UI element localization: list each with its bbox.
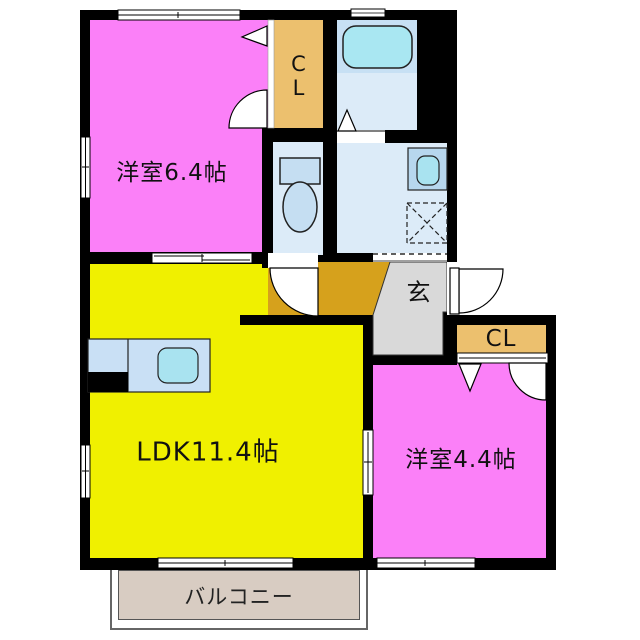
wall-bottom [80, 558, 556, 570]
bathtub-surround [337, 20, 417, 73]
wall-top [80, 10, 457, 20]
wall-bath-wash-divider [385, 130, 447, 143]
room-ldk [90, 264, 365, 558]
room-bedroom-top [90, 20, 268, 252]
label-balcony: バルコニー [184, 581, 294, 611]
wall-bedroom1-bottom [80, 252, 262, 264]
wall-right-upper [447, 10, 457, 262]
wall-mid-vertical [323, 20, 337, 268]
label-closet-right: CL [486, 326, 517, 352]
wall-bedroom2-top [443, 315, 556, 325]
wall-ldk-right [363, 315, 373, 570]
room-washroom [337, 143, 447, 253]
label-bedroom-top: 洋室6.4帖 [116, 153, 228, 187]
wall-right-lower [546, 315, 556, 570]
room-toilet [273, 142, 323, 255]
label-ldk: LDK11.4帖 [136, 432, 279, 469]
closet-top-line2: L [293, 76, 306, 100]
label-genkan: 玄 [407, 273, 432, 308]
label-closet-top: C L [291, 52, 307, 100]
floor-plan: 洋室6.4帖 C L 玄 CL LDK11.4帖 洋室4.4帖 バルコニー [0, 0, 640, 640]
wall-toilet-left [262, 128, 273, 268]
wall-under-toilet [262, 255, 327, 268]
entry-door [447, 262, 503, 315]
label-bedroom-right: 洋室4.4帖 [405, 440, 517, 474]
wall-left [80, 10, 90, 570]
closet-top-line1: C [291, 52, 307, 76]
wall-hall-bottom [240, 315, 373, 325]
wall-under-washroom [323, 253, 447, 262]
